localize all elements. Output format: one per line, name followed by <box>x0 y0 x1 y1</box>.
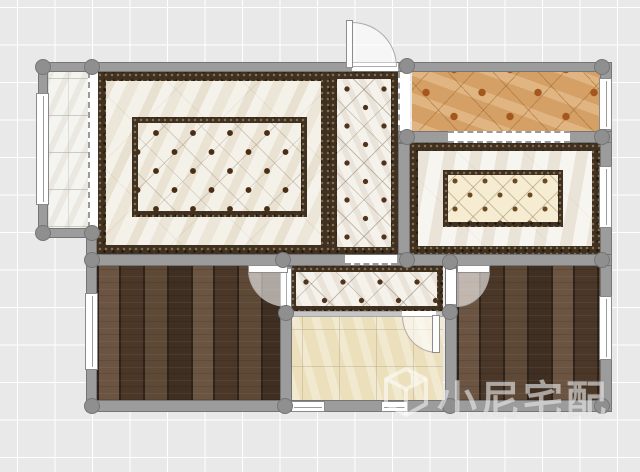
window-balcony-right[interactable] <box>599 78 612 130</box>
hallway-floor <box>337 79 391 247</box>
room-hallway[interactable] <box>330 72 398 254</box>
corner-post <box>84 252 100 268</box>
corner-post <box>277 398 293 414</box>
corner-post <box>399 252 415 268</box>
corner-post <box>442 398 458 414</box>
door-bedroom-right-leaf[interactable] <box>457 265 490 273</box>
opening-bedroom-right-door <box>446 269 456 304</box>
dining-inlay-border <box>443 170 563 227</box>
room-corridor[interactable] <box>290 266 443 312</box>
window-dining-right[interactable] <box>599 166 612 228</box>
corner-post <box>84 398 100 414</box>
corner-post <box>594 129 610 145</box>
opening-balcony-living <box>88 72 98 228</box>
opening-balcony-slider <box>448 131 570 143</box>
corner-post <box>278 305 294 321</box>
window-balcony-left[interactable] <box>36 93 49 205</box>
dining-inlay <box>448 175 558 222</box>
window-kitchen-bottom-1[interactable] <box>291 401 325 412</box>
room-balcony-left[interactable] <box>48 72 88 228</box>
room-dining[interactable] <box>410 143 600 254</box>
corridor-floor <box>296 272 437 306</box>
wall-bottom[interactable] <box>86 400 612 412</box>
living-room-inlay-border <box>132 117 307 217</box>
corner-post <box>594 398 610 414</box>
opening-hallway-balcony <box>398 72 410 131</box>
corner-post <box>399 58 415 74</box>
room-living-room[interactable] <box>97 72 330 254</box>
corner-post <box>84 225 100 241</box>
corner-post <box>442 304 458 320</box>
corner-post <box>35 225 51 241</box>
living-room-inlay <box>138 123 301 211</box>
door-kitchen-leaf[interactable] <box>432 315 440 353</box>
corner-post <box>275 252 291 268</box>
corner-post <box>594 252 610 268</box>
opening-hallway-corridor <box>345 255 397 265</box>
window-bedroom-left[interactable] <box>85 293 98 370</box>
door-entry-swing[interactable] <box>352 22 397 67</box>
room-balcony-top-right[interactable] <box>412 72 600 131</box>
door-entry-leaf[interactable] <box>346 20 353 68</box>
corner-post <box>399 129 415 145</box>
window-kitchen-bottom-2[interactable] <box>381 401 408 412</box>
floorplan-canvas[interactable]: 小尼宅配 <box>0 0 640 472</box>
wall-top[interactable] <box>38 62 612 72</box>
window-bedroom-right[interactable] <box>599 296 612 360</box>
corner-post <box>35 59 51 75</box>
corner-post <box>594 59 610 75</box>
corner-post <box>84 59 100 75</box>
wall-hallway-dining[interactable] <box>398 143 410 254</box>
corner-post <box>442 254 458 270</box>
